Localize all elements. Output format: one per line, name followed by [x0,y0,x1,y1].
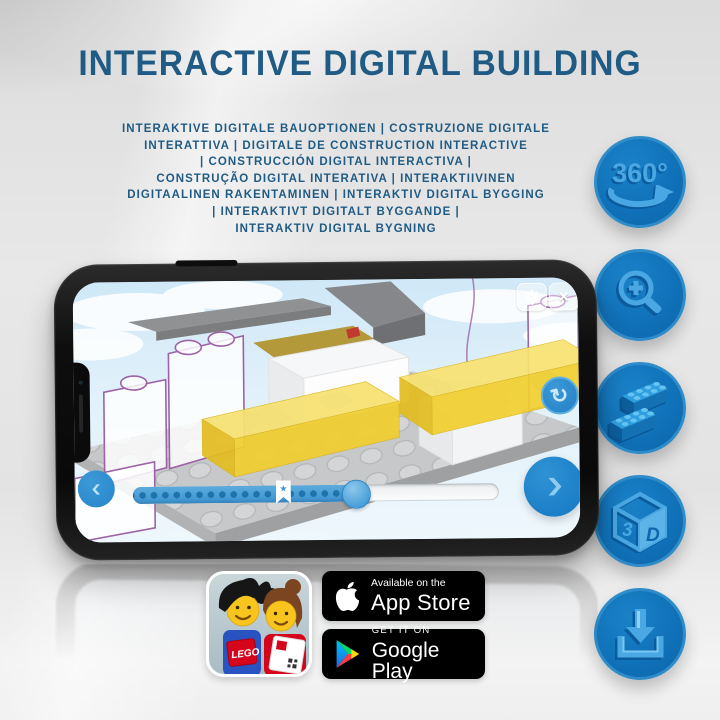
google-play-badge[interactable]: GET IT ON Google Play [322,629,485,679]
app-store-name: App Store [371,592,471,614]
google-play-icon [334,637,362,671]
speaker-slit [79,395,83,433]
next-step-button[interactable] [524,456,581,517]
app-store-tagline: Available on the [371,578,471,589]
apple-icon [334,580,361,613]
google-play-name: Google Play [372,640,485,682]
subtitle-line: | INTERAKTIVT DIGITALT BYGGANDE | [72,204,600,221]
feature-3d-view: 3 D [594,475,686,567]
subtitle-line: INTERAKTIV DIGITAL BYGNING [72,221,600,238]
gear-icon [524,289,539,304]
360-degree-icon: 360° [612,161,668,185]
lego-app-icon[interactable]: LEGO [206,571,312,677]
subtitle-line: CONSTRUÇÃO DIGITAL INTERATIVA | INTERAKT… [72,171,600,188]
subtitle-line: INTERATTIVA | DIGITALE DE CONSTRUCTION I… [72,138,600,155]
minifigures-illustration: LEGO [209,574,309,674]
3d-cube-icon: 3 D [608,489,672,553]
magnifier-plus-icon [611,266,669,324]
page-title: INTERACTIVE DIGITAL BUILDING [14,44,705,84]
chevron-left-icon [86,479,106,499]
previous-step-button[interactable] [78,470,115,507]
progress-fill [133,485,356,504]
close-icon: ✕ [558,288,570,305]
marketing-panel: INTERACTIVE DIGITAL BUILDING INTERAKTIVE… [0,0,720,720]
phone-screen: ✕ ↻ ★ [73,277,581,542]
front-camera [79,381,83,385]
rotation-arrow-icon [604,185,676,209]
feature-zoom [594,249,686,341]
phone-mockup: ✕ ↻ ★ [53,259,599,561]
chevron-right-icon [537,469,571,503]
rotate-view-button[interactable]: ↻ [541,376,579,414]
phone-notch [73,362,91,462]
app-store-badge[interactable]: Available on the App Store [322,571,485,621]
settings-button[interactable] [517,283,547,311]
feature-download [594,588,686,680]
lego-bricks-icon [604,370,676,446]
close-button[interactable]: ✕ [549,282,579,310]
cube-side-label: D [646,525,660,546]
subtitle-line: INTERAKTIVE DIGITALE BAUOPTIONEN | COSTR… [72,121,600,138]
google-play-tagline: GET IT ON [372,626,485,636]
feature-360-rotation: 360° [594,136,686,228]
phone-volume-button [175,260,237,267]
cube-front-label: 3 [622,520,633,541]
rotate-icon: ↻ [548,381,572,410]
subtitle-line: DIGITAALINEN RAKENTAMINEN | INTERAKTIV D… [72,187,600,204]
multilingual-subtitle: INTERAKTIVE DIGITALE BAUOPTIONEN | COSTR… [72,121,600,237]
feature-bricks [594,362,686,454]
download-icon [610,606,670,662]
subtitle-line: | CONSTRUCCIÓN DIGITAL INTERACTIVA | [72,154,600,171]
